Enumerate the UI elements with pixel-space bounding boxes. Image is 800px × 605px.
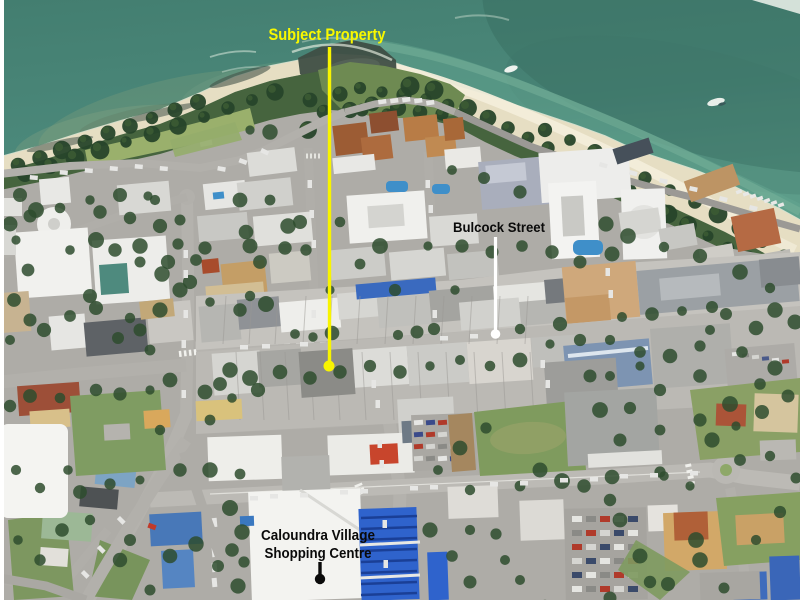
svg-text:Bulcock Street: Bulcock Street (453, 219, 545, 235)
svg-text:Caloundra Village: Caloundra Village (261, 528, 375, 544)
svg-text:Shopping Centre: Shopping Centre (265, 546, 372, 562)
svg-text:Subject Property: Subject Property (269, 26, 387, 44)
